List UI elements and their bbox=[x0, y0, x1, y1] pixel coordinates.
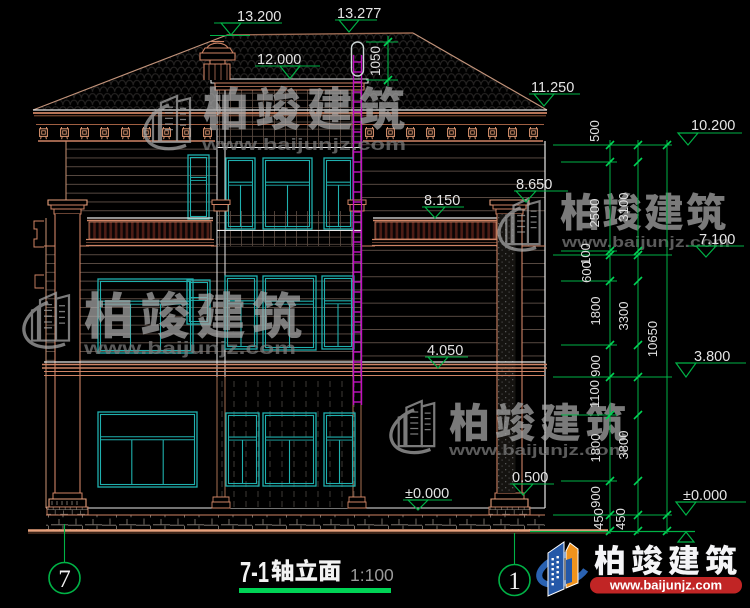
svg-text:8.150: 8.150 bbox=[424, 193, 460, 209]
svg-text:3100: 3100 bbox=[616, 193, 631, 222]
svg-text:1100: 1100 bbox=[587, 380, 602, 408]
svg-text:0.500: 0.500 bbox=[512, 470, 548, 486]
svg-text:7.100: 7.100 bbox=[699, 232, 735, 248]
svg-text:13.277: 13.277 bbox=[337, 6, 381, 22]
svg-text:7: 7 bbox=[58, 566, 71, 593]
svg-text:4.050: 4.050 bbox=[427, 343, 463, 359]
svg-text:3800: 3800 bbox=[616, 431, 631, 460]
svg-text:13.200: 13.200 bbox=[237, 9, 281, 25]
svg-text:www.baijunjz.com: www.baijunjz.com bbox=[83, 338, 296, 358]
svg-text:10.200: 10.200 bbox=[691, 118, 735, 134]
svg-text:1800: 1800 bbox=[588, 434, 603, 463]
svg-text:450: 450 bbox=[613, 508, 628, 530]
svg-text:1050: 1050 bbox=[368, 46, 383, 76]
svg-text:2500: 2500 bbox=[587, 199, 602, 228]
svg-text:900: 900 bbox=[588, 355, 603, 377]
svg-text:www.baijunjz.com: www.baijunjz.com bbox=[201, 135, 406, 154]
svg-text:1800: 1800 bbox=[588, 297, 603, 326]
svg-text:8.650: 8.650 bbox=[516, 177, 552, 193]
svg-text:1: 1 bbox=[508, 568, 521, 595]
svg-text:3300: 3300 bbox=[616, 302, 631, 331]
svg-text:±0.000: ±0.000 bbox=[683, 488, 727, 504]
svg-text:900: 900 bbox=[588, 486, 603, 508]
svg-text:12.000: 12.000 bbox=[257, 52, 301, 68]
svg-text:www.baijunjz.com: www.baijunjz.com bbox=[609, 578, 722, 593]
svg-text:7-1: 7-1 bbox=[240, 557, 269, 589]
svg-text:±0.000: ±0.000 bbox=[405, 486, 449, 502]
svg-text:11.250: 11.250 bbox=[531, 80, 574, 96]
svg-text:1:100: 1:100 bbox=[350, 565, 394, 585]
svg-text:500: 500 bbox=[587, 120, 602, 142]
svg-text:10650: 10650 bbox=[645, 321, 660, 357]
svg-text:3.800: 3.800 bbox=[694, 349, 730, 365]
svg-text:600: 600 bbox=[579, 261, 594, 283]
svg-text:450: 450 bbox=[591, 508, 606, 530]
